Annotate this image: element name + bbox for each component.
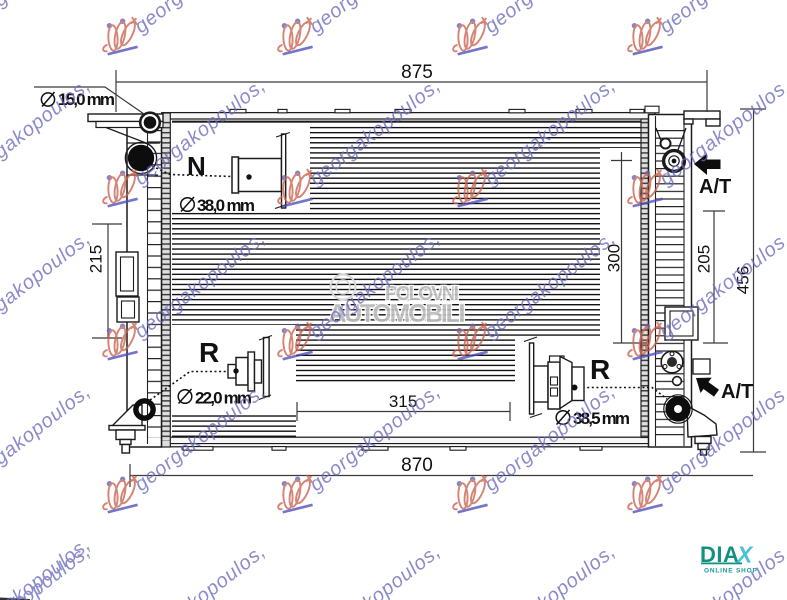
svg-text:A/T: A/T	[721, 381, 753, 403]
svg-text:870: 870	[401, 455, 433, 476]
svg-text:205: 205	[694, 245, 713, 273]
svg-text:R: R	[590, 354, 610, 385]
svg-text:215: 215	[86, 245, 105, 273]
svg-text:ONLINE SHOP: ONLINE SHOP	[704, 568, 758, 575]
svg-text:A/T: A/T	[699, 176, 731, 198]
svg-text:38,0 mm: 38,0 mm	[197, 196, 255, 215]
svg-text:N: N	[187, 151, 206, 181]
svg-text:R: R	[199, 337, 219, 368]
